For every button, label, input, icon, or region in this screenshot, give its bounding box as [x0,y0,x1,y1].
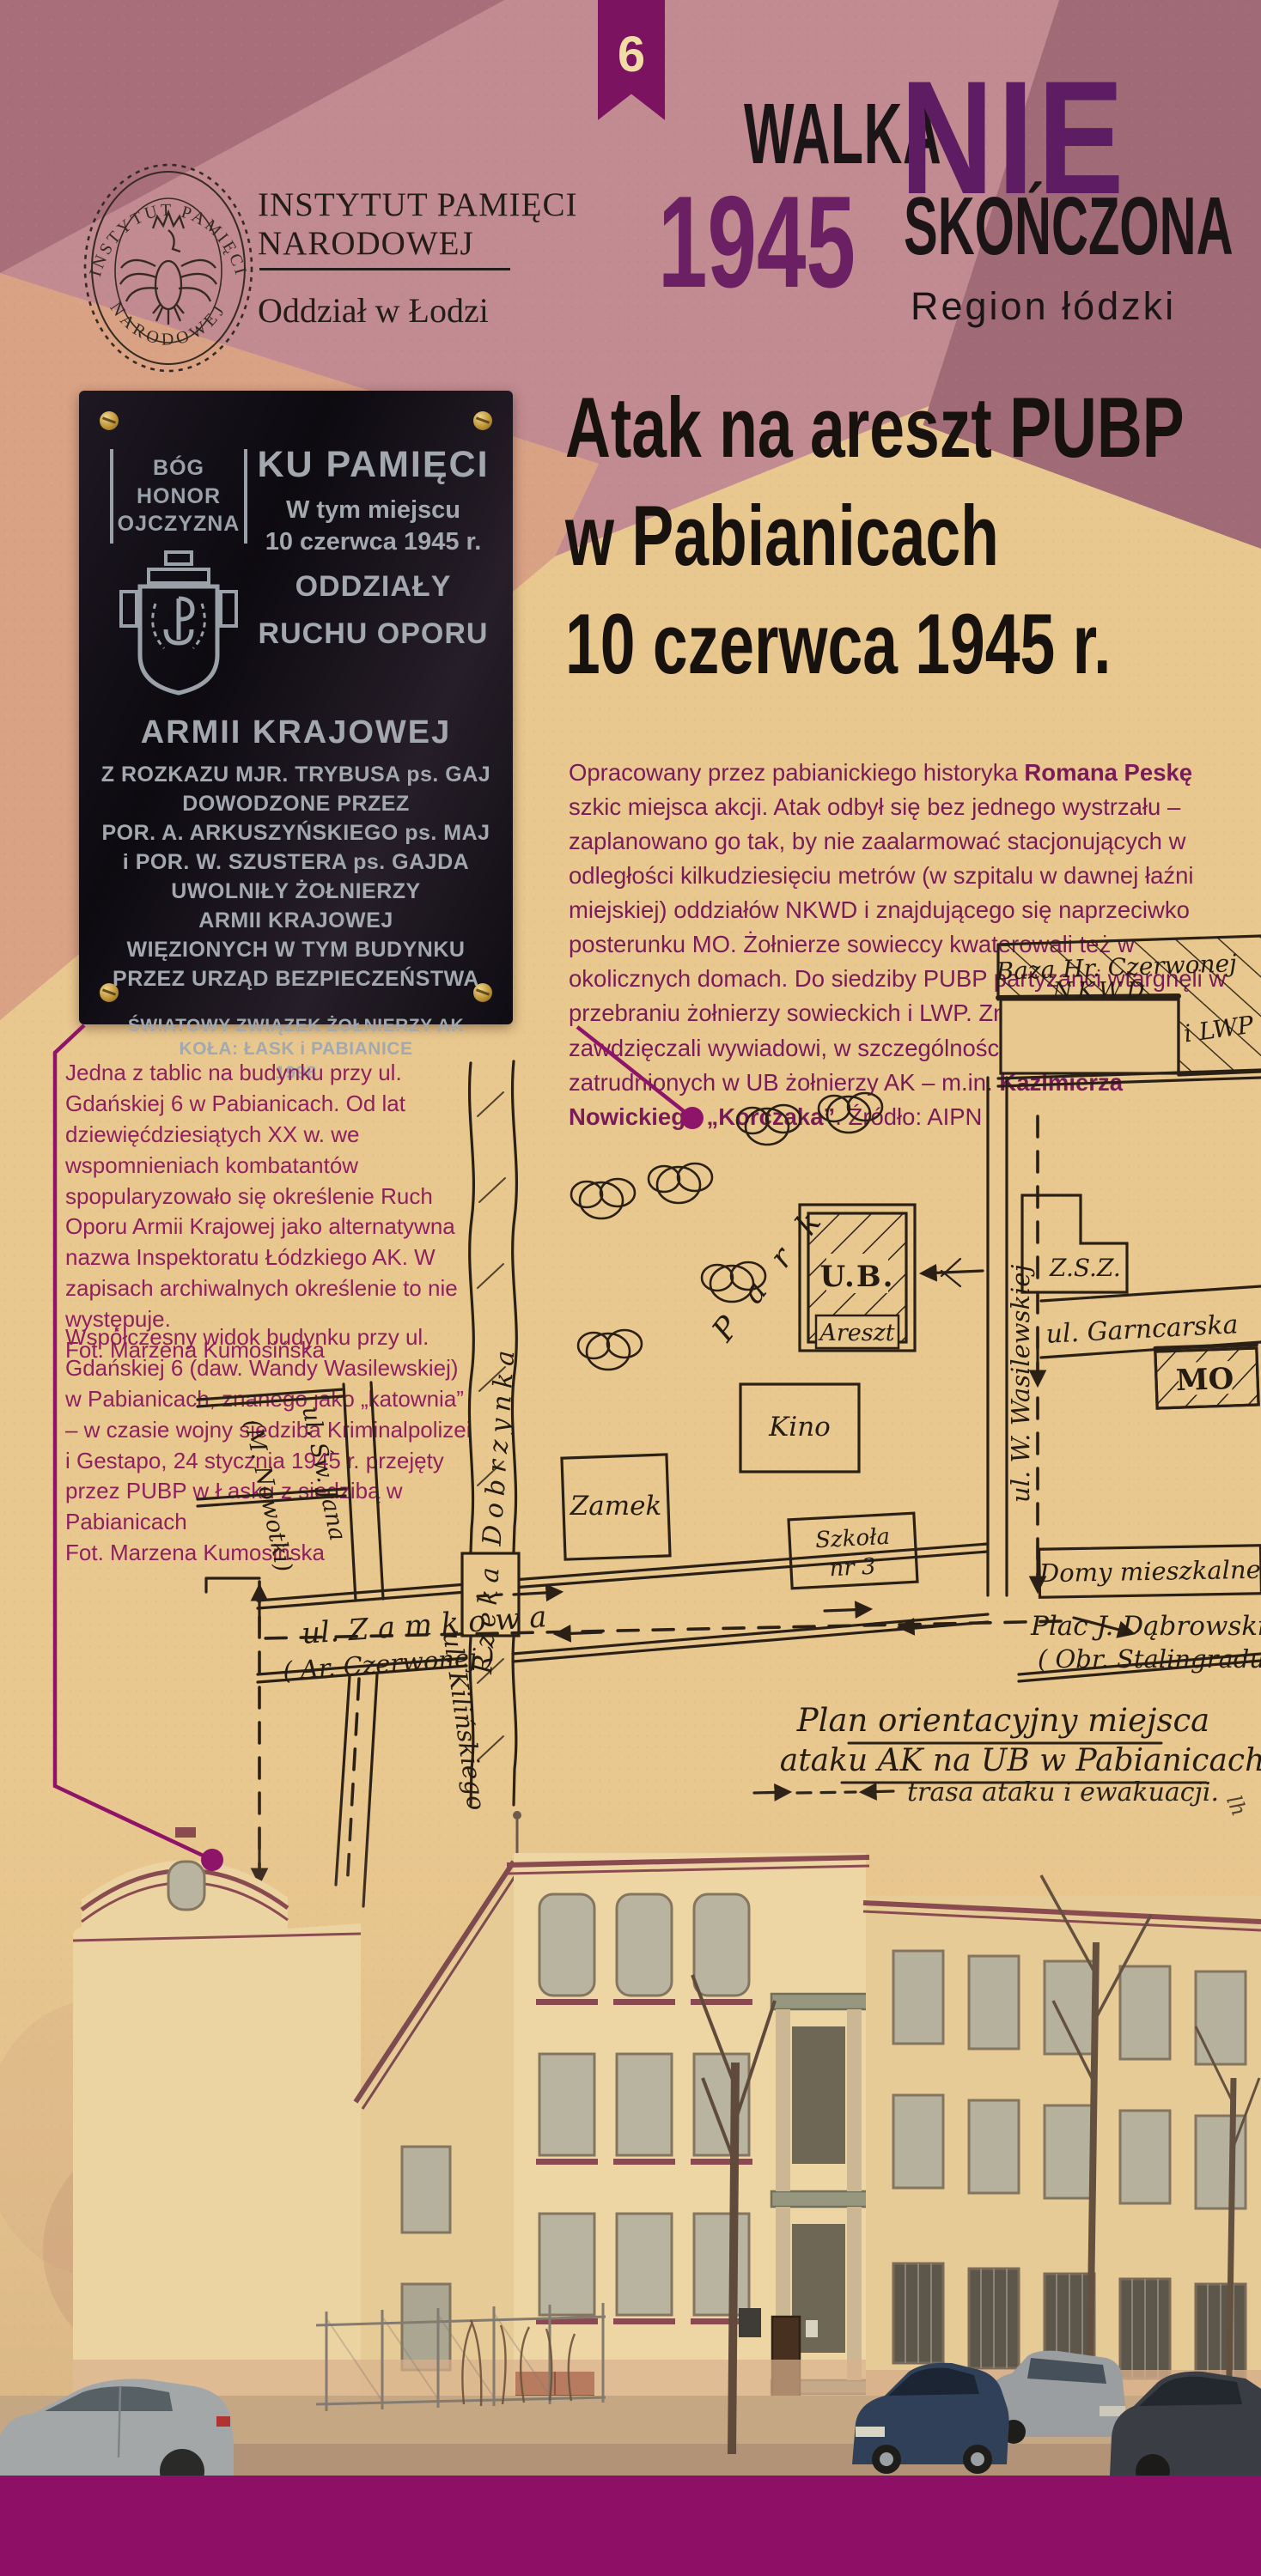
caption-text: Współczesny widok budynku przy ul. Gdańs… [65,1324,472,1534]
masthead-skonczona: SKOŃCZONA [904,185,1234,268]
map-signature: lh [1221,1792,1252,1820]
page-title-line3: 10 czerwca 1945 r. [565,601,1111,686]
plaque-line: POR. A. ARKUSZYŃSKIEGO ps. MAJ [79,818,513,848]
masthead-1945: 1945 [658,177,856,307]
map-legend-label: trasa ataku i ewakuacji. [907,1777,1219,1807]
plaque-line: W tym miejscu [256,496,490,525]
plaque-line: RUCHU OPORU [256,617,490,651]
map-label-mo: MO [1175,1362,1234,1398]
map-label-park: P a r k [705,1199,833,1349]
plaque-line: WIĘZIONYCH W TYM BUDYNKU [79,935,513,964]
map-label-wasilewskiej: ul. W. Wasilewskiej [1006,1265,1035,1503]
page-number: 6 [618,26,645,131]
ipn-name-line1: INSTYTUT PAMIĘCI [258,185,577,224]
map-label-szkola: Szkoła [814,1524,890,1554]
map-title-line1: Plan orientacyjny miejsca [796,1702,1209,1739]
lead-text: Opracowany przez pabianickiego historyka [569,759,1024,786]
lead-bold-name: Romana Peskę [1024,759,1192,786]
map-label-rzeka: Rzeka Dobrzynka [468,1343,521,1676]
parked-cars [0,2351,1261,2494]
map-label-zamkowa-old: ( Ar. Czerwonej ) [282,1642,496,1686]
map-label-kilinskiego: ul. Kilińskiego [437,1630,491,1812]
photo-credit: Fot. Marzena Kumosińska [65,1538,476,1569]
building-photo [0,1769,1261,2494]
caption-text: Jedna z tablic na budynku przy ul. Gdańs… [65,1060,458,1332]
map-label-areszt: Areszt [817,1320,894,1346]
map-label-szkola-nr: nr 3 [829,1554,876,1583]
plaque-line: ODDZIAŁY [256,570,490,604]
screw-icon [473,411,492,430]
page-number-ribbon: 6 [598,0,665,131]
map-label-zamek: Zamek [570,1491,662,1522]
map-label-domy: Domy mieszkalne [1039,1555,1261,1589]
lead-paragraph: Opracowany przez pabianickiego historyka… [569,756,1239,1135]
map-title-line2: ataku AK na UB w Pabianicach [780,1743,1261,1778]
plaque-body: Z ROZKAZU MJR. TRYBUSA ps. GAJ DOWODZONE… [79,760,513,993]
map-label-garncarska: ul. Garncarska [1045,1309,1240,1350]
plaque-line: Z ROZKAZU MJR. TRYBUSA ps. GAJ [79,760,513,789]
map-label-ub: U.B. [820,1260,895,1294]
plaque-line: i POR. W. SZUSTERA ps. GAJDA [79,848,513,877]
masthead-region: Region łódzki [911,287,1176,325]
screw-icon [473,983,492,1002]
plaque-line: ŚWIATOWY ZWIĄZEK ŻOŁNIERZY AK [79,1014,513,1038]
badge-word-ojczyzna: OJCZYZNA [115,510,242,538]
ipn-name-line2: NARODOWEJ [258,224,577,263]
lead-text: szkic miejsca akcji. Atak odbył się bez … [569,793,1226,1096]
map-label-plac: Plac J. Dąbrowskiego [1030,1611,1261,1642]
badge-word-bog: BÓG [115,454,242,483]
screw-icon [100,983,119,1002]
caption-plaque: Jedna z tablic na budynku przy ul. Gdańs… [65,1058,476,1366]
map-label-plac-old: ( Obr. Stalingradu ) [1038,1644,1261,1674]
ipn-name: INSTYTUT PAMIĘCI NARODOWEJ [258,185,577,263]
page-title-line2: w Pabianicach [565,493,999,578]
badge-word-honor: HONOR [115,483,242,511]
plaque-line: DOWODZONE PRZEZ [79,789,513,818]
plaque-title: KU PAMIĘCI [256,444,490,486]
caption-building: Współczesny widok budynku przy ul. Gdańs… [65,1322,476,1569]
ak-shield-emblem [114,544,243,707]
plaque-badge: BÓG HONOR OJCZYZNA [101,444,256,711]
exhibition-panel: 6 WALKA NIE 1945 SKOŃCZONA Region łódzki… [0,0,1261,2576]
bottom-bar [0,2476,1261,2576]
memorial-plaque: BÓG HONOR OJCZYZNA [79,391,513,1024]
lead-text: . Źródło: AIPN [835,1103,982,1130]
plaque-line: ARMII KRAJOWEJ [79,906,513,935]
connector-dot-building [201,1849,223,1871]
map-label-kino: Kino [768,1412,831,1443]
plaque-line: ARMII KRAJOWEJ [79,714,513,751]
plaque-line: 10 czerwca 1945 r. [256,528,490,556]
plaque-line: PRZEZ URZĄD BEZPIECZEŃSTWA [79,964,513,993]
ipn-seal-logo: INSTYTUT PAMIĘCI NARODOWEJ [72,156,266,381]
map-label-zamkowa: ul. Z a m k o w a [301,1600,548,1651]
ipn-divider [259,268,510,270]
map-label-zsz: Z.S.Z. [1049,1254,1121,1282]
screw-icon [100,411,119,430]
ipn-branch: Oddział w Łodzi [258,290,489,331]
page-title-line1: Atak na areszt PUBP [565,385,1185,470]
plaque-line: UWOLNIŁY ŻOŁNIERZY [79,877,513,906]
